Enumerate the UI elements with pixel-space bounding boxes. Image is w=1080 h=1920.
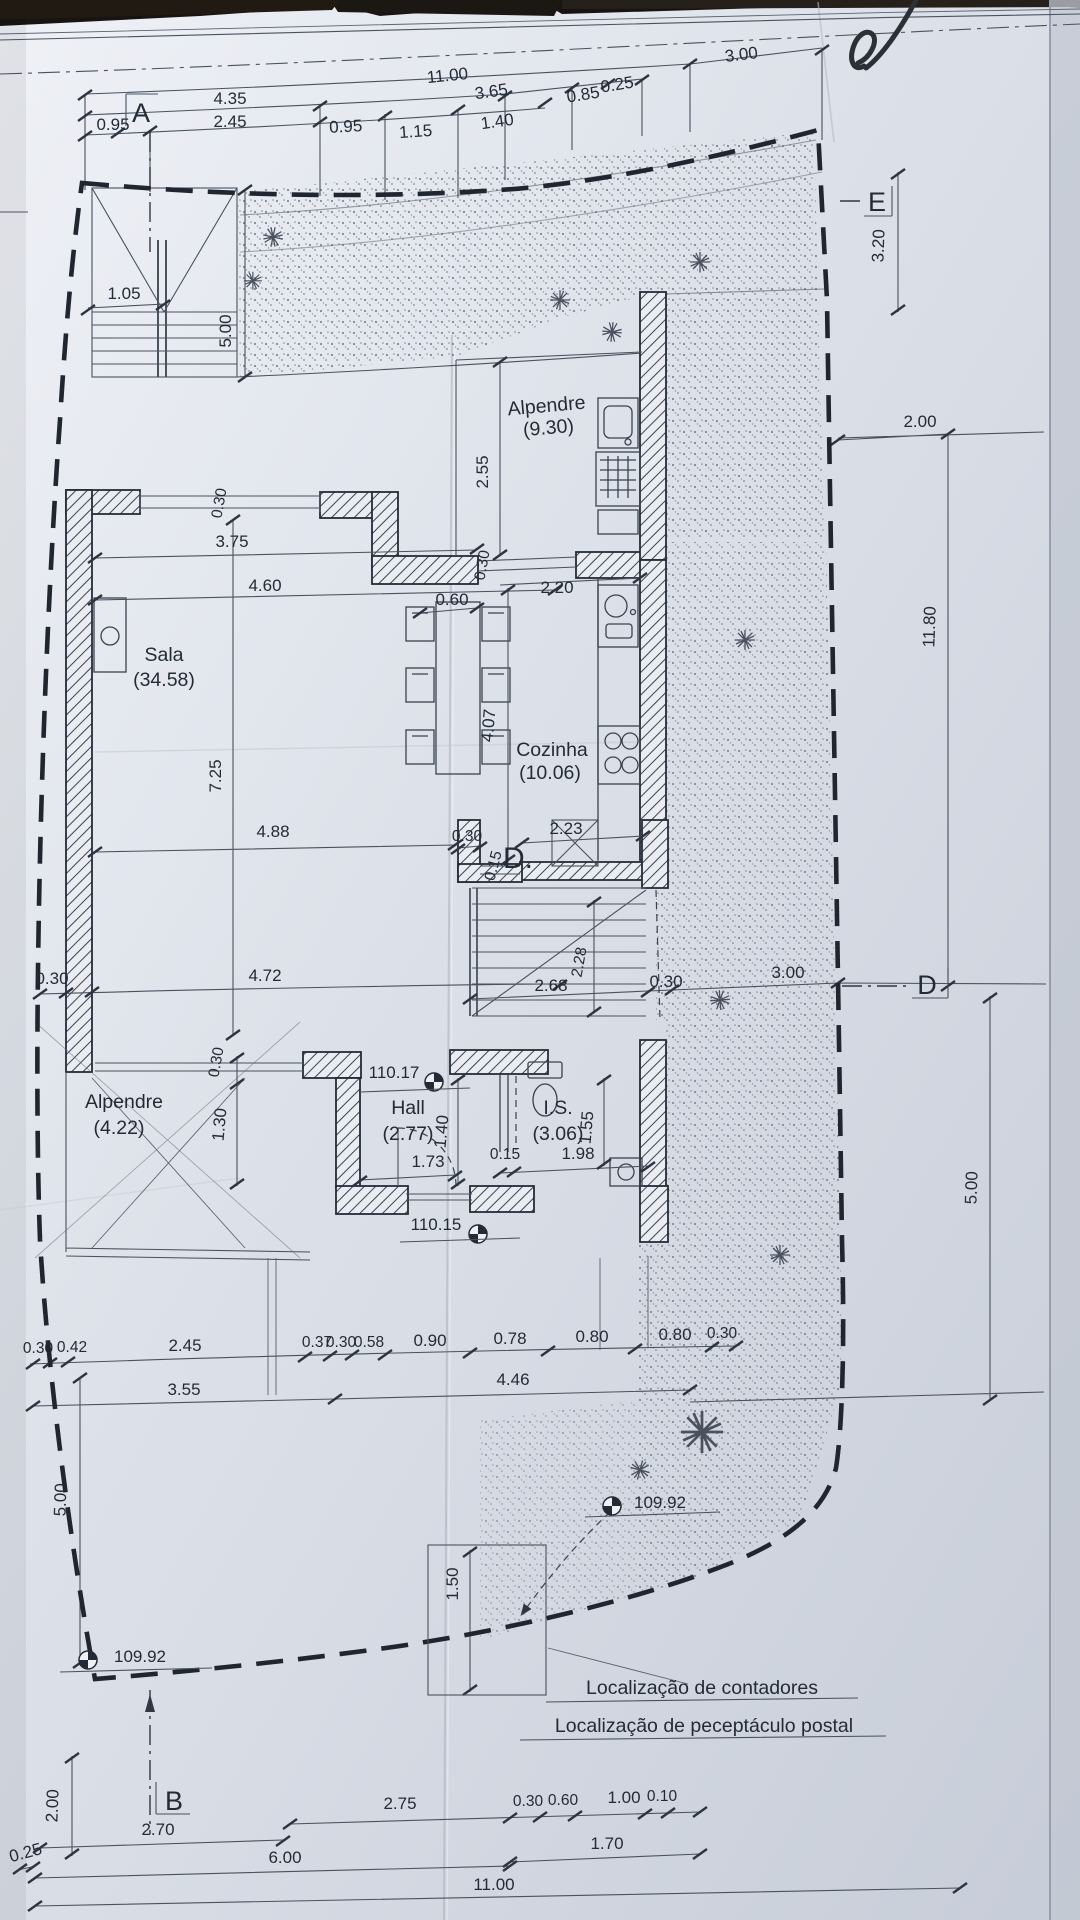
room-area-cozinha: (10.06) <box>519 762 581 784</box>
dim-label: 0.30 <box>513 1793 544 1810</box>
dim-label: 4.46 <box>496 1370 529 1389</box>
level-110-17: 110.17 <box>369 1063 420 1082</box>
dim-label: 2.20 <box>540 578 573 597</box>
dim-label: 3.00 <box>771 963 804 982</box>
room-label-alpendre-bottom: Alpendre <box>85 1091 163 1113</box>
dim-label: 2.75 <box>383 1794 416 1813</box>
dim-label: 7.25 <box>206 759 225 792</box>
floor-plan-photo: 4.35 2.45 0.95 0.95 1.15 1.40 11.00 3.65… <box>0 0 1080 1920</box>
dim-label: 0.30 <box>452 828 483 845</box>
dim-label: 0.95 <box>96 115 129 134</box>
dim-label: 2.68 <box>534 976 567 995</box>
dim-label: 5.00 <box>50 1483 70 1517</box>
marker-e: E <box>868 187 886 217</box>
dim-label: 4.72 <box>248 966 281 985</box>
marker-door-d: D. <box>503 842 533 875</box>
note-postal: Localização de peceptáculo postal <box>555 1715 853 1737</box>
dim-label: 6.00 <box>268 1848 301 1867</box>
dim-label: 0.10 <box>647 1788 678 1805</box>
dim-label: 3.55 <box>167 1380 200 1399</box>
dim-label: 1.98 <box>561 1144 594 1163</box>
dim-label: 1.30 <box>209 1107 231 1142</box>
dim-label: 2.00 <box>903 412 936 431</box>
room-area-sala: (34.58) <box>133 669 195 691</box>
dim-label: 5.00 <box>961 1171 981 1205</box>
dim-label: 0.30 <box>707 1325 738 1342</box>
marker-a: A <box>132 98 150 128</box>
dim-label: 4.60 <box>248 576 281 595</box>
room-area-alpendre-top: (9.30) <box>522 415 575 441</box>
dim-label: 0.90 <box>413 1331 446 1350</box>
dim-label: 4.35 <box>213 89 246 108</box>
dim-label: 11.00 <box>473 1875 514 1894</box>
dim-label: 4.88 <box>256 822 289 841</box>
dim-label: 1.40 <box>431 1114 453 1149</box>
dim-label: 1.05 <box>107 284 140 303</box>
dim-label: 3.00 <box>724 43 759 66</box>
dim-label: 1.00 <box>607 1788 640 1807</box>
dim-label: 0.30 <box>23 1340 54 1357</box>
dim-label: 11.80 <box>919 606 939 648</box>
level-110-15: 110.15 <box>411 1215 462 1234</box>
dim-label: 0.30 <box>326 1334 357 1351</box>
dim-label: 0.15 <box>490 1146 520 1163</box>
room-label-hall: Hall <box>391 1097 425 1119</box>
room-label-cozinha: Cozinha <box>516 739 588 761</box>
dim-label: 0.80 <box>575 1327 608 1346</box>
level-109-92-mid: 109.92 <box>634 1493 686 1512</box>
dim-label: 0.60 <box>548 1792 579 1809</box>
dim-label: 5.00 <box>216 314 235 347</box>
dim-label: 1.15 <box>398 121 432 142</box>
room-area-alpendre-bottom: (4.22) <box>94 1117 145 1139</box>
dim-label: 3.20 <box>868 229 888 263</box>
room-label-sala: Sala <box>144 644 183 666</box>
dim-label: 0.60 <box>435 590 468 609</box>
room-area-is: (3.06) <box>533 1123 584 1145</box>
dim-label: 2.45 <box>213 112 246 131</box>
dim-label: 1.73 <box>411 1152 444 1171</box>
dim-label: 0.30 <box>35 969 68 988</box>
dim-label: 2.23 <box>549 819 582 838</box>
dim-label: 2.55 <box>473 455 492 488</box>
dim-label: 2.70 <box>141 1820 174 1839</box>
room-label-is: I.S. <box>543 1097 572 1119</box>
dim-label: 3.75 <box>215 532 248 551</box>
marker-b: B <box>165 1786 183 1816</box>
dim-label: 0.95 <box>329 116 363 137</box>
dim-label: 0.78 <box>493 1329 526 1348</box>
dim-label: 2.00 <box>42 1789 62 1823</box>
dim-label: 0.30 <box>649 972 682 991</box>
note-contadores: Localização de contadores <box>586 1677 818 1699</box>
floor-plan-drawing: 4.35 2.45 0.95 0.95 1.15 1.40 11.00 3.65… <box>0 0 1080 1920</box>
dim-label: 4.07 <box>478 708 500 743</box>
dim-label: 1.70 <box>590 1834 623 1853</box>
dim-label: 0.58 <box>354 1334 384 1351</box>
dim-label: 0.42 <box>57 1339 87 1356</box>
room-area-hall: (2.77) <box>383 1123 434 1145</box>
level-109-92-low: 109.92 <box>114 1647 166 1666</box>
marker-d: D <box>917 970 937 1000</box>
dim-label: 0.80 <box>658 1325 691 1344</box>
dim-label: 1.50 <box>443 1567 462 1600</box>
dim-label: 2.45 <box>168 1336 201 1355</box>
